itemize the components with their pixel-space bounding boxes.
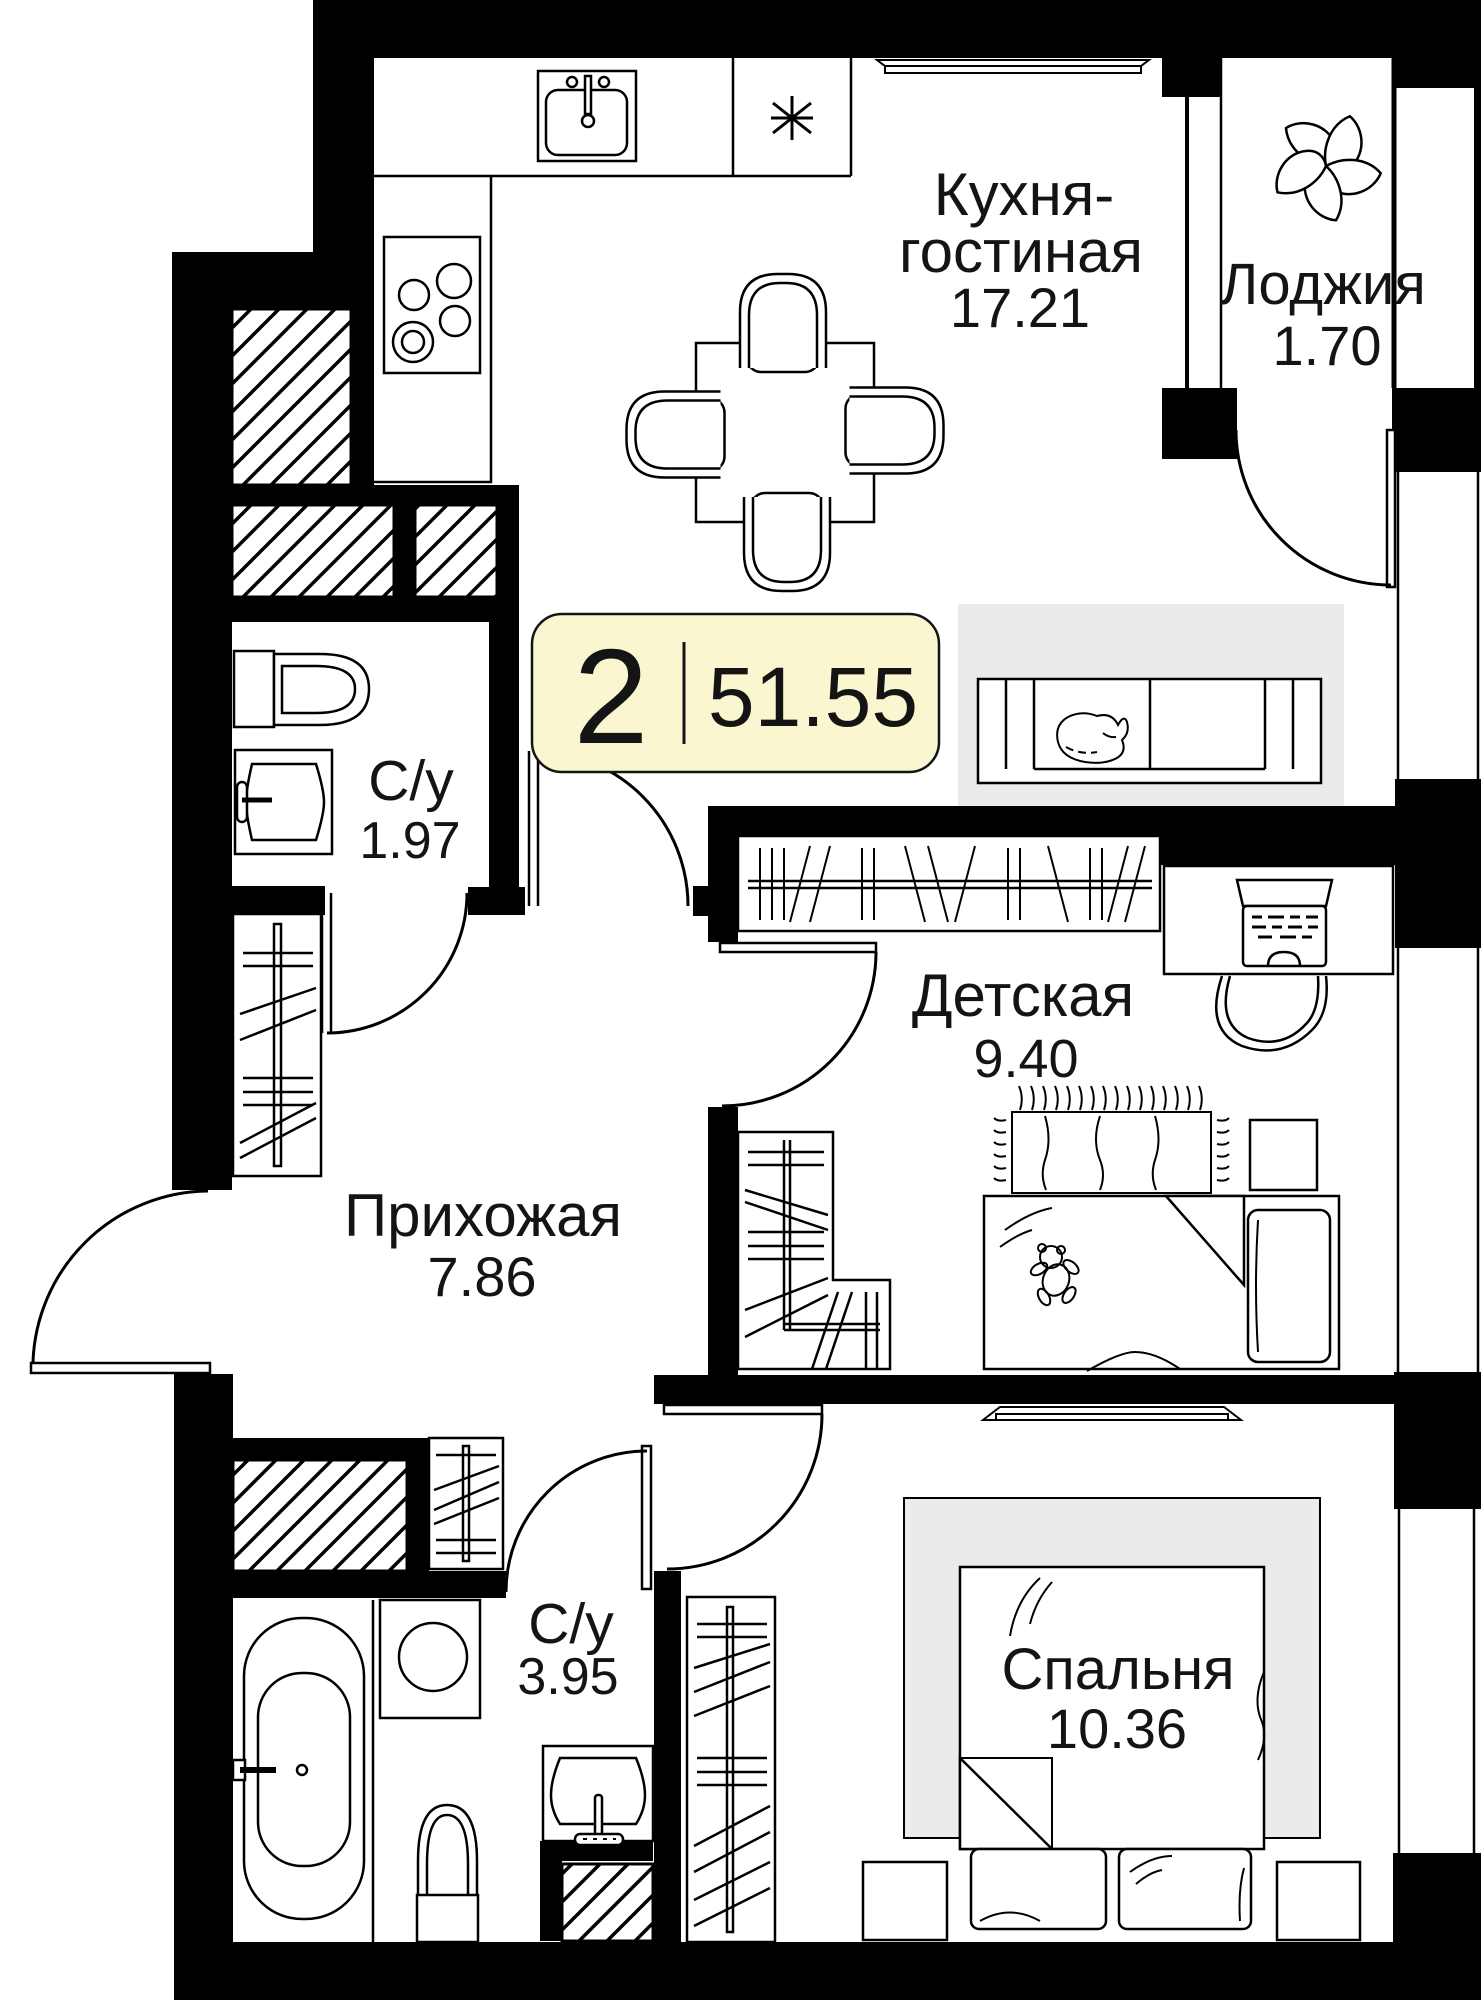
svg-text:С/у: С/у <box>528 1592 614 1656</box>
svg-text:Спальня: Спальня <box>1001 1637 1234 1702</box>
svg-text:51.55: 51.55 <box>708 650 918 744</box>
svg-text:2: 2 <box>573 621 648 772</box>
svg-text:Прихожая: Прихожая <box>344 1182 622 1249</box>
svg-text:10.36: 10.36 <box>1047 1697 1187 1760</box>
svg-text:3.95: 3.95 <box>517 1648 618 1706</box>
svg-text:17.21: 17.21 <box>950 276 1090 339</box>
svg-text:1.70: 1.70 <box>1273 314 1382 377</box>
svg-text:гостиная: гостиная <box>899 218 1143 285</box>
svg-text:9.40: 9.40 <box>973 1029 1078 1089</box>
svg-text:7.86: 7.86 <box>428 1245 537 1308</box>
svg-text:1.97: 1.97 <box>359 812 460 870</box>
svg-text:С/у: С/у <box>368 749 454 813</box>
svg-text:Лоджия: Лоджия <box>1220 252 1426 317</box>
svg-text:Детская: Детская <box>912 962 1134 1029</box>
